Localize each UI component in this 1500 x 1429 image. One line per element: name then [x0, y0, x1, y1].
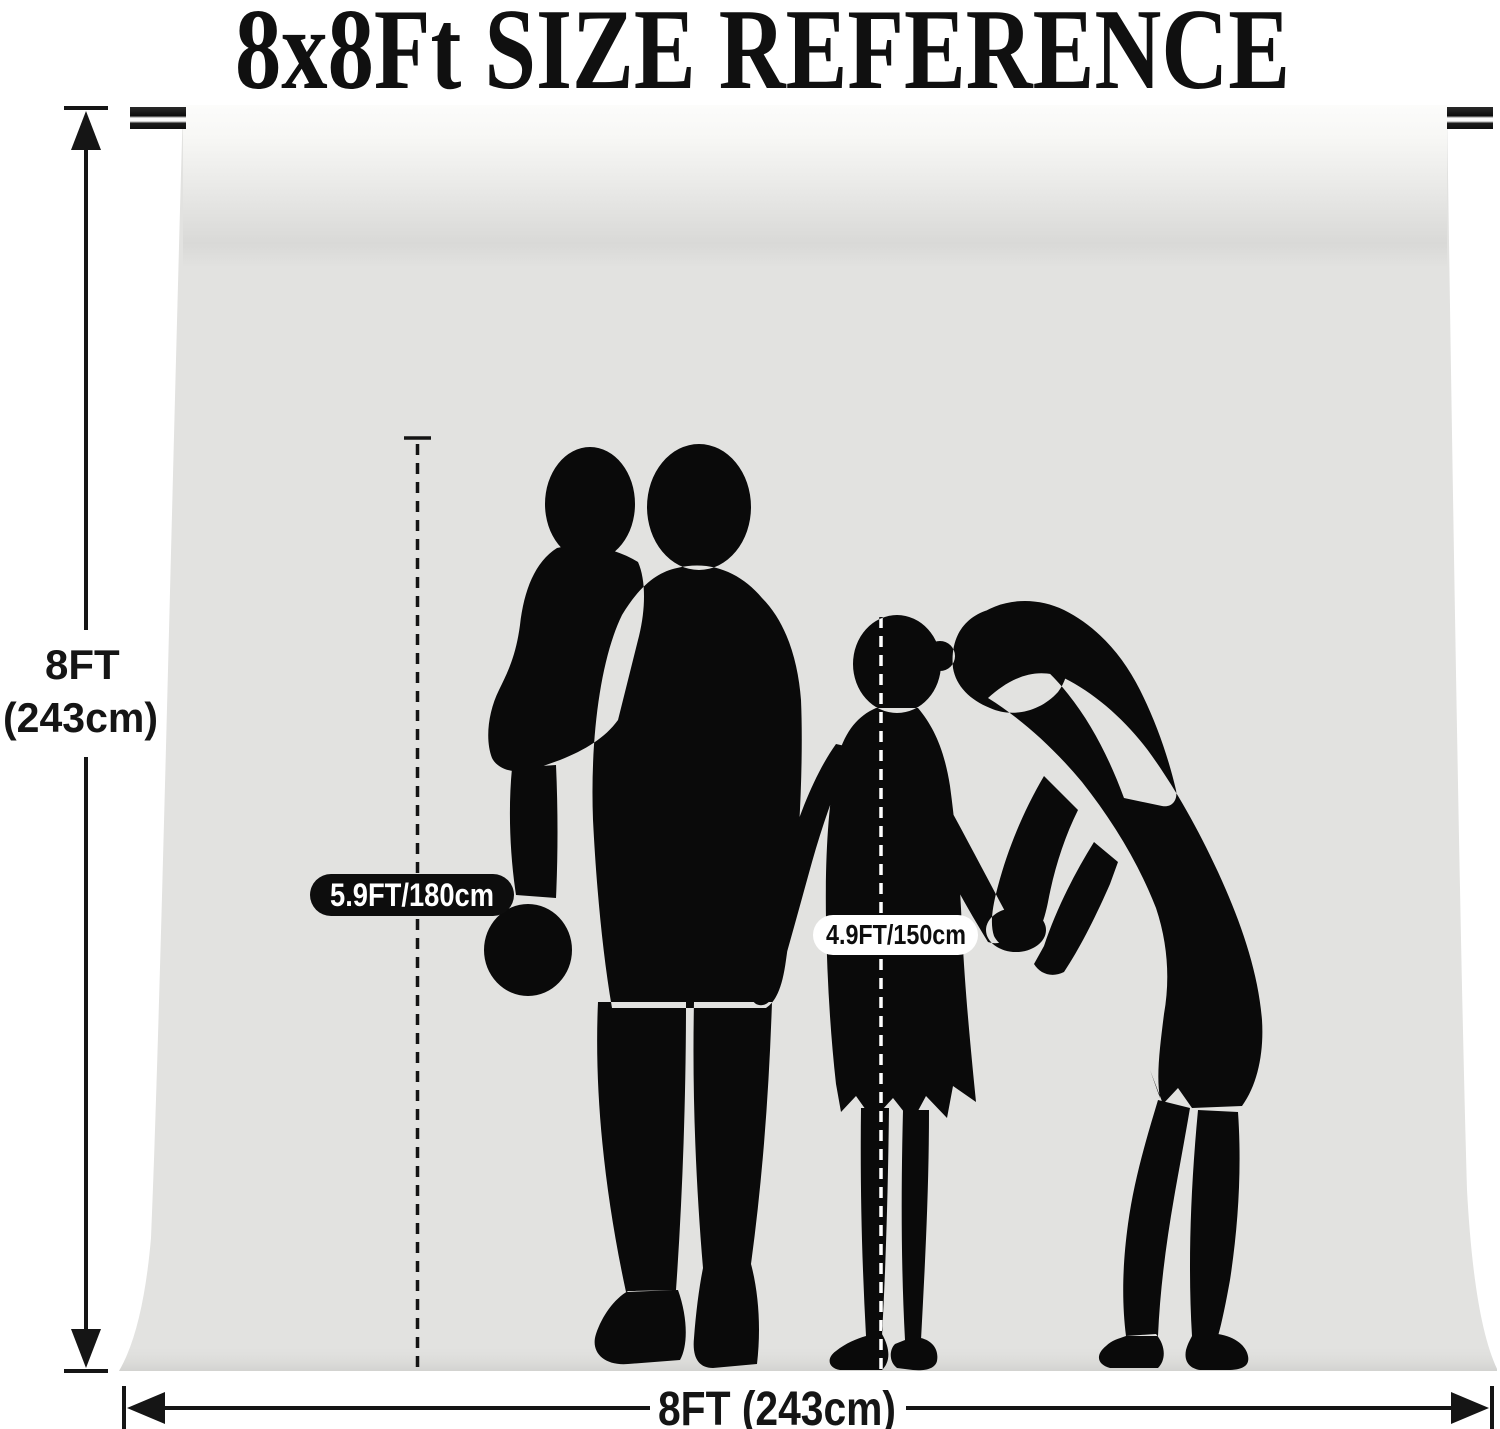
- arrow-down-icon: [71, 1329, 101, 1368]
- arrow-left-icon: [127, 1392, 165, 1424]
- backdrop-rod-left: [130, 107, 186, 129]
- child-height-badge-label: 4.9FT/150cm: [826, 919, 966, 950]
- backdrop-top-roll: [183, 105, 1447, 268]
- size-reference-graphic: 8FT (243cm) 8FT (243cm) 5.9FT/180cm 4.9F…: [0, 0, 1500, 1429]
- height-dimension-value-ft: 8FT: [45, 641, 120, 688]
- backdrop-floor-shadow: [110, 1344, 1500, 1371]
- backdrop-rod-right: [1447, 107, 1493, 129]
- arrow-right-icon: [1451, 1392, 1489, 1424]
- page-title: 8x8Ft SIZE REFERENCE: [235, 0, 1290, 114]
- height-dimension-value-cm: (243cm): [3, 694, 158, 741]
- size-reference-canvas: 8FT (243cm) 8FT (243cm) 5.9FT/180cm 4.9F…: [0, 0, 1500, 1429]
- child-height-badge: 4.9FT/150cm: [813, 915, 978, 955]
- arrow-up-icon: [71, 111, 101, 150]
- backdrop-curtain: [119, 105, 1497, 1371]
- adult-height-badge: 5.9FT/180cm: [310, 874, 514, 916]
- width-dimension-value: 8FT (243cm): [658, 1383, 896, 1429]
- adult-height-badge-label: 5.9FT/180cm: [330, 877, 494, 913]
